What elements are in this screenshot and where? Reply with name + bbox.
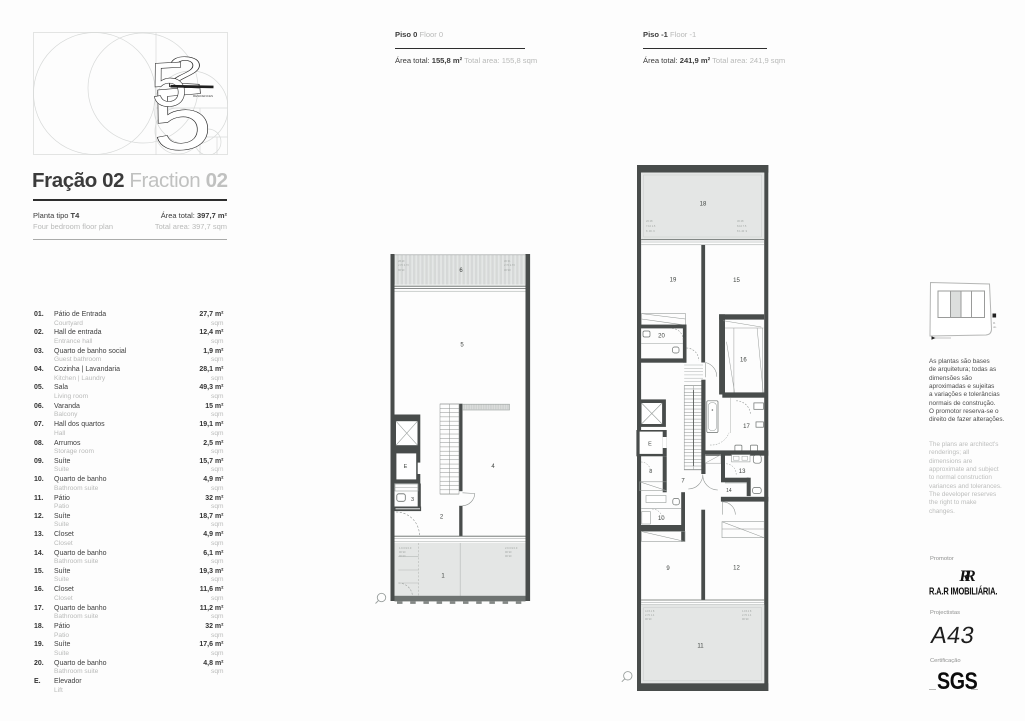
svg-text:17: 17 [743,424,750,430]
svg-text:16: 16 [740,358,747,364]
svg-text:4: 4 [491,464,495,470]
svg-text:30 28: 30 28 [737,219,744,223]
svg-text:E: E [404,464,408,470]
svg-text:3: 3 [411,497,414,503]
svg-text:2.70 2.70: 2.70 2.70 [398,263,409,267]
svg-text:8 1.40 .9: 8 1.40 .9 [737,229,748,233]
svg-text:90 90: 90 90 [399,550,406,554]
svg-text:90 90: 90 90 [504,268,511,272]
svg-text:8.10 7.5: 8.10 7.5 [737,224,747,228]
svg-text:1.9 0.9 0.9: 1.9 0.9 0.9 [399,546,412,550]
svg-text:90 90: 90 90 [505,550,512,554]
svg-text:90 90: 90 90 [645,617,652,621]
svg-text:2.70 1.4: 2.70 1.4 [742,613,752,617]
svg-text:7: 7 [681,479,685,485]
svg-text:5: 5 [460,343,464,349]
svg-text:2.9 0.9 0.9: 2.9 0.9 0.9 [505,546,518,550]
svg-text:12: 12 [733,566,740,572]
svg-text:8: 8 [649,469,652,475]
svg-text:11: 11 [697,644,704,650]
svg-text:2.70 1.4: 2.70 1.4 [645,613,655,617]
svg-text:90 90: 90 90 [398,268,405,272]
svg-text:26 28: 26 28 [646,219,653,223]
svg-text:10: 10 [658,516,665,522]
svg-text:90 90: 90 90 [505,554,512,558]
svg-text:7.10 1.5: 7.10 1.5 [646,224,656,228]
svg-text:9: 9 [666,566,670,572]
svg-text:15: 15 [733,278,740,284]
svg-text:18: 18 [700,202,707,208]
svg-text:2: 2 [440,515,444,521]
svg-text:13: 13 [739,469,746,475]
svg-text:do: do [993,325,997,329]
svg-text:E: E [648,442,652,448]
svg-text:90 90: 90 90 [399,554,406,558]
svg-text:30 31: 30 31 [504,259,511,263]
svg-text:1.15.1 8: 1.15.1 8 [742,609,752,613]
svg-text:2.70 2.70: 2.70 2.70 [504,263,515,267]
svg-text:8 .00 .9: 8 .00 .9 [646,229,655,233]
svg-text:19: 19 [670,278,677,284]
svg-text:4.15.1 8: 4.15.1 8 [645,609,655,613]
svg-text:RESIDENCES: RESIDENCES [193,94,213,98]
svg-text:28 29: 28 29 [398,259,405,263]
svg-text:20: 20 [658,334,665,340]
svg-text:90 90: 90 90 [742,617,749,621]
svg-text:14: 14 [726,488,732,494]
